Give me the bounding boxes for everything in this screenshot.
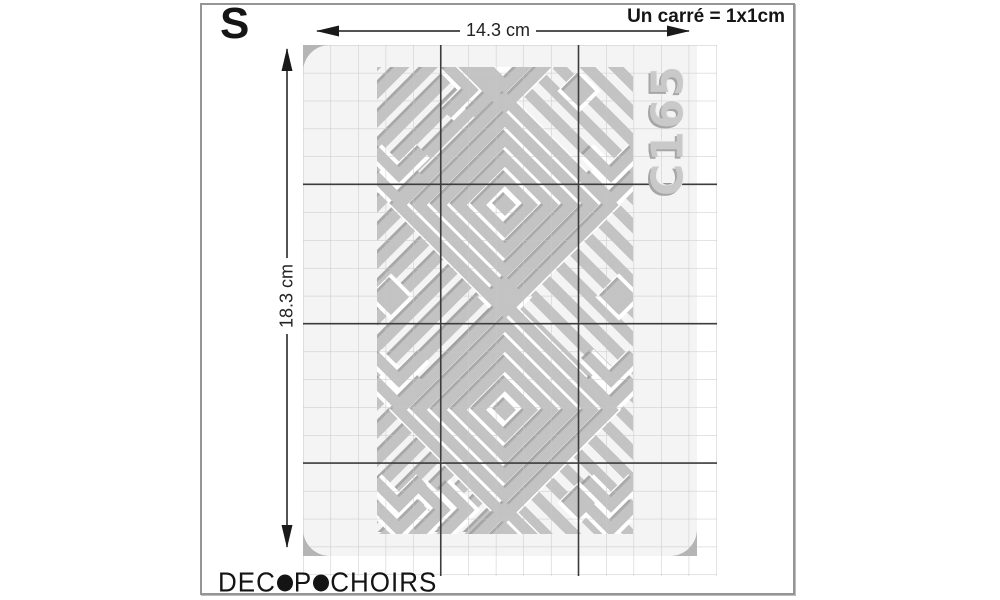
width-label: 14.3 cm [460,20,536,41]
arrow-up-icon [282,48,293,71]
brand-text-suffix: CHOIRS [330,566,437,599]
brand-disc-icon [313,574,329,591]
arrow-left-icon [316,26,339,37]
height-label: 18.3 cm [277,258,298,334]
size-letter: S [220,0,250,49]
arrow-down-icon [282,525,293,548]
brand-text-mid: P [294,566,312,599]
product-image: S Un carré = 1x1cm 14.3 cm 18.3 cm [0,0,1000,600]
arrow-right-icon [667,26,690,37]
brand-text-prefix: DEC [218,566,276,599]
reference-code: C165 [643,64,694,196]
brand-disc-icon [277,574,293,591]
brand-logo: DECPCHOIRS [218,566,437,599]
content-frame: S Un carré = 1x1cm 14.3 cm 18.3 cm [200,3,795,595]
